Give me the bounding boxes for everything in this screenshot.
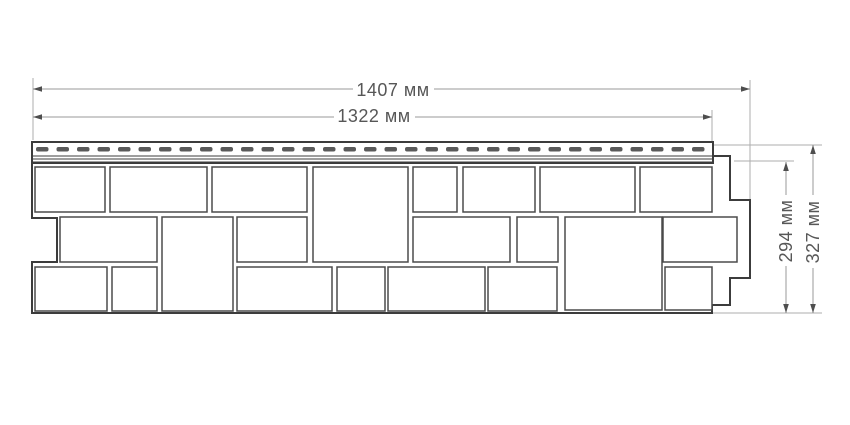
nail-slot <box>57 147 70 152</box>
stone-block <box>35 167 105 212</box>
nail-slot <box>631 147 644 152</box>
nail-slot <box>672 147 685 152</box>
stone-block <box>388 267 485 311</box>
nail-slot <box>549 147 562 152</box>
dimension-arrow <box>783 162 789 171</box>
nail-slot <box>651 147 664 152</box>
nail-slot <box>200 147 213 152</box>
dimension-arrow <box>783 304 789 313</box>
stone-block <box>488 267 557 311</box>
nail-slot <box>98 147 111 152</box>
nail-slot <box>36 147 49 152</box>
nail-slot <box>446 147 459 152</box>
nail-slot <box>180 147 193 152</box>
dim-label-height-panel: 294 мм <box>776 200 796 263</box>
stone-block <box>237 217 307 262</box>
stone-block <box>517 217 558 262</box>
stone-block <box>665 267 712 310</box>
nail-slot <box>569 147 582 152</box>
nailing-hem-strip <box>32 142 713 163</box>
nail-slot <box>487 147 500 152</box>
dimension-arrow <box>33 86 42 92</box>
stone-block <box>463 167 535 212</box>
stone-block <box>212 167 307 212</box>
nail-slot <box>118 147 131 152</box>
stone-block <box>413 217 510 262</box>
nail-hem-outline <box>32 142 713 163</box>
nail-slot <box>405 147 418 152</box>
nail-slot <box>692 147 705 152</box>
nail-slot <box>467 147 480 152</box>
nail-slot <box>364 147 377 152</box>
nail-slot <box>610 147 623 152</box>
dim-label-height-overall: 327 мм <box>803 201 823 264</box>
nail-slot <box>303 147 316 152</box>
nail-slot <box>344 147 357 152</box>
nail-slot <box>590 147 603 152</box>
panel-technical-drawing: 1407 мм 1322 мм 294 мм 327 мм <box>0 0 850 425</box>
stone-block <box>540 167 635 212</box>
stone-block <box>162 217 233 311</box>
stone-block <box>565 217 662 310</box>
nail-slot <box>241 147 254 152</box>
dimension-arrow <box>810 145 816 154</box>
stone-block <box>237 267 332 311</box>
stone-block <box>640 167 712 212</box>
nail-slot <box>282 147 295 152</box>
stone-block <box>337 267 385 311</box>
stone-block <box>60 217 157 262</box>
nail-slot <box>159 147 172 152</box>
dim-label-width-overall: 1407 мм <box>356 80 429 100</box>
drawing-canvas: 1407 мм 1322 мм 294 мм 327 мм <box>0 0 850 425</box>
nail-slot <box>528 147 541 152</box>
nail-slot <box>221 147 234 152</box>
nail-slot <box>139 147 152 152</box>
stone-block <box>112 267 157 311</box>
stone-block <box>35 267 107 311</box>
nail-slot <box>323 147 336 152</box>
dimension-arrow <box>703 114 712 120</box>
nail-slot <box>508 147 521 152</box>
dimension-arrow <box>33 114 42 120</box>
nail-slot <box>426 147 439 152</box>
nail-slot <box>262 147 275 152</box>
stone-block <box>313 167 408 262</box>
stone-block <box>413 167 457 212</box>
stone-block <box>663 217 737 262</box>
dim-label-width-hem: 1322 мм <box>337 106 410 126</box>
nail-slot <box>77 147 90 152</box>
dimension-arrow <box>741 86 750 92</box>
nail-slot <box>385 147 398 152</box>
dimension-arrow <box>810 304 816 313</box>
stone-block <box>110 167 207 212</box>
